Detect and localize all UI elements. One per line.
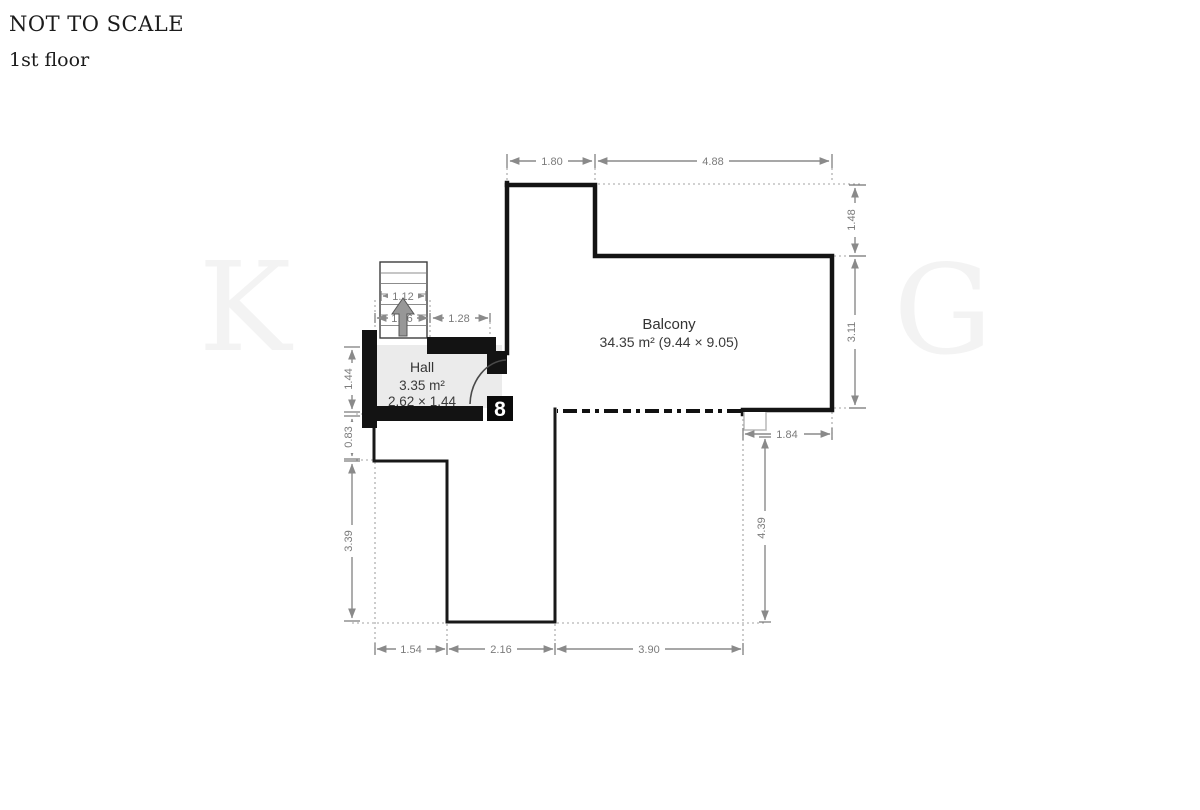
dim-right-mid: 3.11	[846, 259, 866, 408]
balcony-room: Balcony 34.35 m² (9.44 × 9.05)	[507, 183, 832, 414]
dim-label-right-upper: 1.48	[846, 209, 858, 230]
lower-terrace	[374, 409, 766, 622]
dim-label-top-right: 4.88	[702, 156, 723, 168]
dim-bottom-right: 3.90	[557, 642, 743, 656]
dim-lower-right-height: 4.39	[756, 437, 771, 622]
dim-right-upper: 1.48	[846, 185, 866, 256]
dim-label-bottom-mid: 2.16	[490, 644, 511, 656]
dim-label-left-small: 0.83	[343, 426, 355, 447]
hall-name: Hall	[410, 359, 434, 375]
dim-label-bottom-left: 1.54	[400, 644, 421, 656]
dim-label-left-lower: 3.39	[343, 530, 355, 551]
page-title: NOT TO SCALE	[9, 12, 184, 36]
hall-room: Hall 3.35 m² 2.62 × 1.44	[362, 330, 507, 428]
dim-stairs-gap: 1.28	[433, 312, 490, 325]
hall-size: 2.62 × 1.44	[388, 394, 456, 409]
dim-bottom-left: 1.54	[375, 642, 447, 656]
dim-left-small: 0.83	[343, 416, 360, 459]
dim-label-stairs-gap: 1.28	[448, 313, 469, 325]
hall-area: 3.35 m²	[399, 378, 445, 393]
dim-top-right: 4.88	[598, 154, 832, 168]
extension-line	[375, 462, 555, 655]
dim-label-lower-right-height: 4.39	[756, 517, 768, 538]
floor-plan-canvas: K G NOT TO SCALE 1st floor Balcony 34.35…	[0, 0, 1200, 810]
watermark-block: 8	[487, 396, 513, 421]
dim-label-bottom-right: 3.90	[638, 644, 659, 656]
page-header: NOT TO SCALE 1st floor	[9, 12, 184, 71]
dim-hall-height: 1.44	[343, 347, 360, 412]
watermark-letter-right: G	[893, 239, 992, 383]
balcony-area: 34.35 m² (9.44 × 9.05)	[600, 334, 739, 350]
dim-label-right-mid: 3.11	[846, 322, 858, 343]
watermark-letter-left: K	[199, 236, 294, 380]
pillar-box	[744, 412, 766, 430]
dim-bottom-mid: 2.16	[449, 642, 555, 656]
dim-label-top-left: 1.80	[541, 156, 562, 168]
terrace-wall	[374, 409, 555, 622]
balcony-name: Balcony	[642, 316, 696, 333]
dim-label-balcony-notch: 1.84	[776, 429, 797, 441]
extension-line	[507, 168, 832, 183]
watermark-glyph: 8	[494, 398, 506, 421]
dim-label-hall-height: 1.44	[343, 368, 355, 389]
floorplan-page: K G NOT TO SCALE 1st floor Balcony 34.35…	[0, 0, 1200, 810]
hall-wall-top	[427, 337, 496, 354]
balcony-wall	[507, 185, 832, 414]
dim-top-left: 1.80	[507, 154, 595, 168]
floor-label: 1st floor	[9, 49, 90, 71]
dim-left-lower: 3.39	[343, 461, 360, 621]
